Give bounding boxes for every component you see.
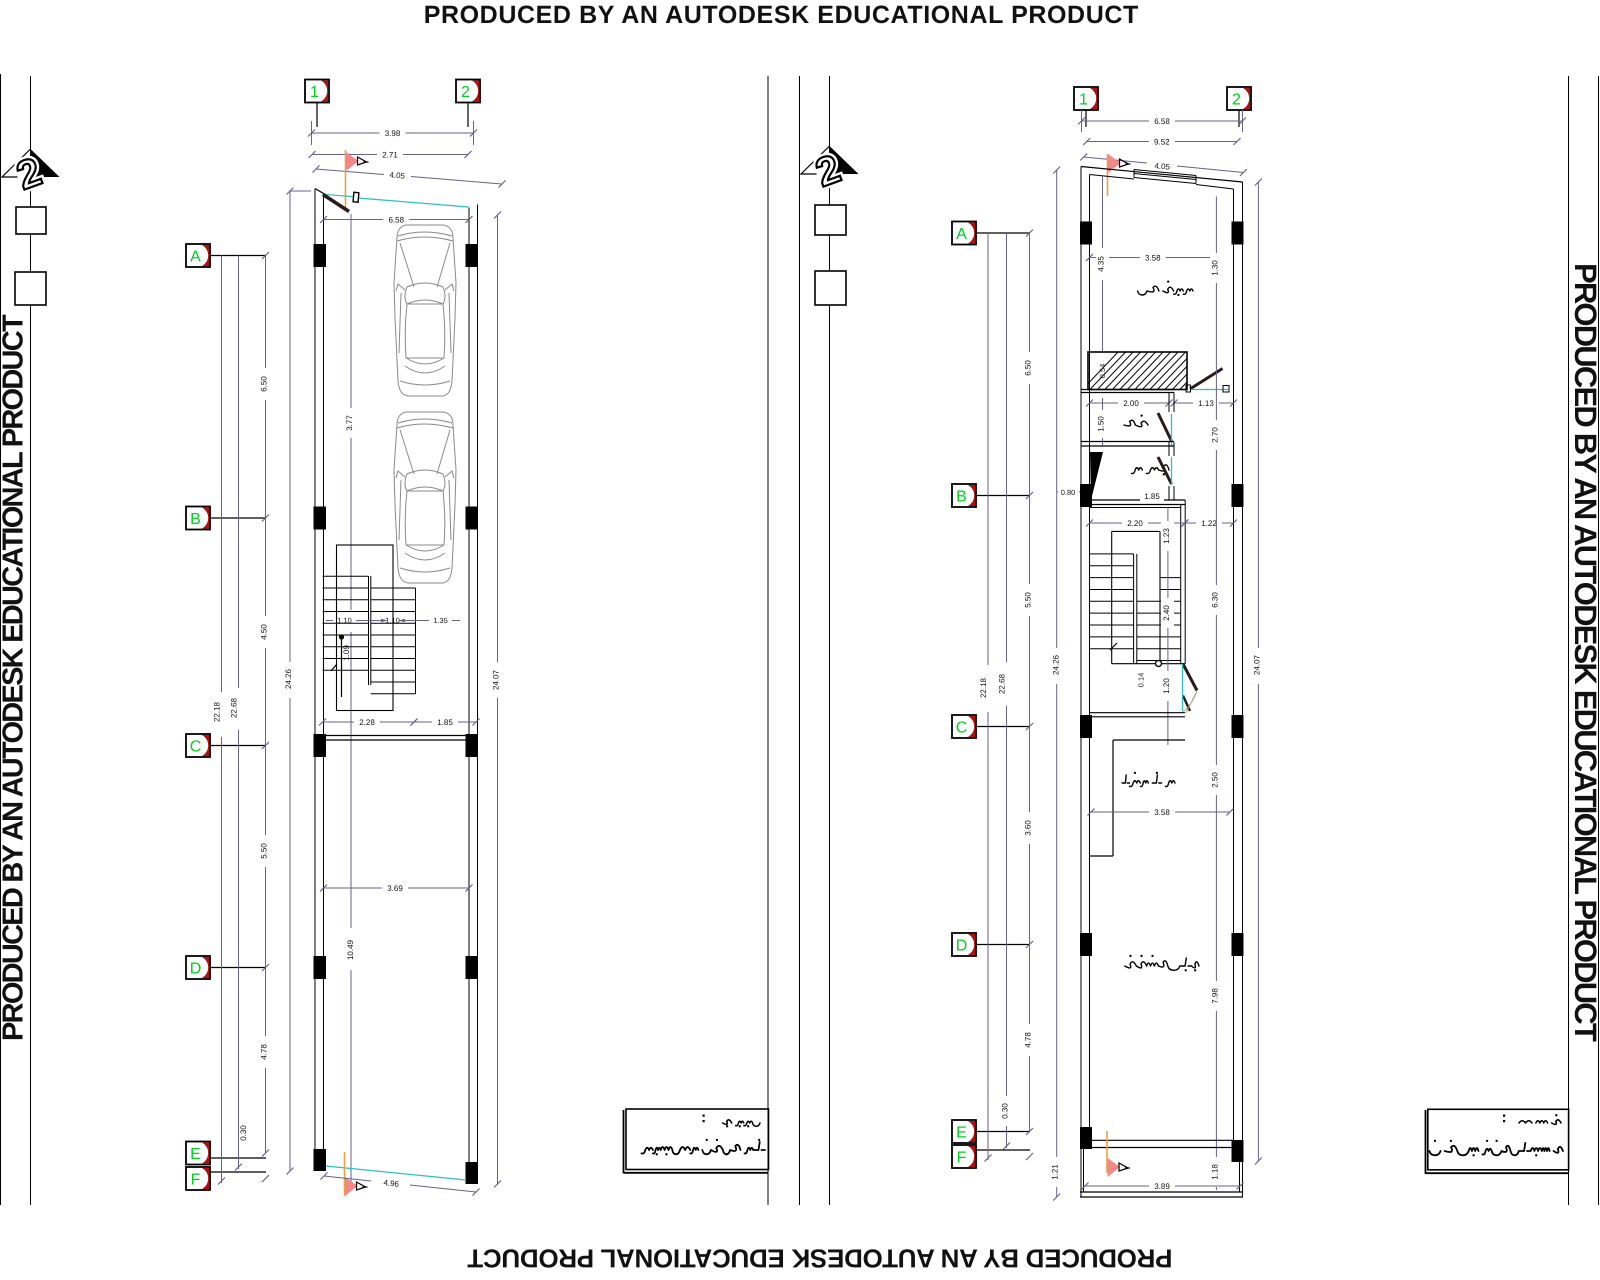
svg-text:1.10: 1.10 xyxy=(385,616,400,625)
svg-text:4.35: 4.35 xyxy=(1097,256,1106,272)
svg-text:C: C xyxy=(190,739,202,756)
svg-text:24.26: 24.26 xyxy=(284,668,293,689)
svg-text:9.52: 9.52 xyxy=(1154,138,1170,147)
svg-text:D: D xyxy=(956,938,968,955)
svg-text:3.89: 3.89 xyxy=(1154,1182,1170,1191)
svg-text:C: C xyxy=(956,720,968,737)
svg-text:1.85: 1.85 xyxy=(437,718,453,727)
svg-text:10.49: 10.49 xyxy=(346,939,355,960)
svg-text:4.78: 4.78 xyxy=(1024,1032,1033,1048)
svg-text:6.50: 6.50 xyxy=(260,376,269,392)
svg-text:1.13: 1.13 xyxy=(1198,399,1214,408)
svg-text:1.30: 1.30 xyxy=(1210,260,1219,276)
svg-text:2.71: 2.71 xyxy=(382,151,398,160)
svg-text:2.00: 2.00 xyxy=(1123,399,1139,408)
svg-text:6.58: 6.58 xyxy=(1154,117,1170,126)
svg-text:PRODUCED BY AN AUTODESK EDUCAT: PRODUCED BY AN AUTODESK EDUCATIONAL PROD… xyxy=(0,314,30,1041)
svg-text:B: B xyxy=(190,511,201,528)
svg-text:5.50: 5.50 xyxy=(1024,592,1033,608)
svg-text:0.30: 0.30 xyxy=(1001,1103,1010,1119)
svg-text:3.77: 3.77 xyxy=(345,415,354,431)
svg-text:4.05: 4.05 xyxy=(389,170,406,180)
svg-text:F: F xyxy=(191,1172,201,1189)
svg-text:0.30: 0.30 xyxy=(239,1125,248,1141)
svg-text:1.85: 1.85 xyxy=(1144,492,1160,501)
svg-text:A: A xyxy=(190,249,201,266)
svg-text:1.50: 1.50 xyxy=(1097,416,1106,432)
svg-text:0.14: 0.14 xyxy=(1137,673,1146,688)
svg-text:PRODUCED BY AN AUTODESK EDUCAT: PRODUCED BY AN AUTODESK EDUCATIONAL PROD… xyxy=(1568,263,1600,1042)
svg-text:D: D xyxy=(190,961,202,978)
svg-text:1.18: 1.18 xyxy=(1210,1164,1219,1180)
svg-text:B: B xyxy=(956,489,967,506)
svg-text:24.07: 24.07 xyxy=(492,669,501,690)
svg-text:F: F xyxy=(957,1150,967,1167)
svg-text:22.18: 22.18 xyxy=(213,701,222,722)
svg-text:E: E xyxy=(190,1146,201,1163)
svg-text:1: 1 xyxy=(1079,92,1088,109)
svg-text:PRODUCED BY AN AUTODESK EDUCAT: PRODUCED BY AN AUTODESK EDUCATIONAL PROD… xyxy=(424,1,1139,29)
svg-text:3.69: 3.69 xyxy=(387,884,403,893)
svg-text:1.10: 1.10 xyxy=(337,616,352,625)
svg-text:2.28: 2.28 xyxy=(359,718,375,727)
svg-text:E: E xyxy=(956,1125,967,1142)
svg-text:3.98: 3.98 xyxy=(385,129,401,138)
svg-text:2.20: 2.20 xyxy=(1127,519,1143,528)
svg-text:2.50: 2.50 xyxy=(1210,772,1219,788)
svg-text:1.09: 1.09 xyxy=(342,645,351,661)
svg-text:1.35: 1.35 xyxy=(433,616,448,625)
svg-text:2: 2 xyxy=(461,84,470,101)
svg-text:1.20: 1.20 xyxy=(1162,678,1171,694)
svg-text:3.58: 3.58 xyxy=(1145,254,1161,263)
svg-text:22.68: 22.68 xyxy=(230,697,239,718)
svg-text:2.40: 2.40 xyxy=(1162,605,1171,621)
svg-text:6.50: 6.50 xyxy=(1024,360,1033,376)
svg-text:1: 1 xyxy=(310,84,319,101)
svg-text:6.58: 6.58 xyxy=(388,216,404,225)
svg-text:2: 2 xyxy=(1232,92,1241,109)
svg-text:4.05: 4.05 xyxy=(1154,161,1171,171)
svg-text:1.21: 1.21 xyxy=(1051,1164,1060,1180)
svg-text:3.60: 3.60 xyxy=(1024,820,1033,836)
svg-text:22.18: 22.18 xyxy=(979,677,988,698)
svg-text:1.23: 1.23 xyxy=(1162,528,1171,544)
svg-text:4.96: 4.96 xyxy=(383,1178,400,1189)
svg-text:22.68: 22.68 xyxy=(998,673,1007,694)
svg-text:2.70: 2.70 xyxy=(1210,427,1219,443)
svg-text:1.22: 1.22 xyxy=(1201,519,1217,528)
svg-text:3.58: 3.58 xyxy=(1154,808,1170,817)
svg-text:PRODUCED BY AN AUTODESK EDUCAT: PRODUCED BY AN AUTODESK EDUCATIONAL PROD… xyxy=(467,1244,1172,1274)
svg-text:24.26: 24.26 xyxy=(1052,654,1061,675)
svg-text:5.50: 5.50 xyxy=(260,843,269,859)
svg-text:6.30: 6.30 xyxy=(1210,592,1219,608)
svg-text:7.98: 7.98 xyxy=(1210,988,1219,1004)
svg-text:4.50: 4.50 xyxy=(260,624,269,640)
svg-text:4.78: 4.78 xyxy=(260,1044,269,1060)
svg-text:A: A xyxy=(956,226,967,243)
svg-text:24.07: 24.07 xyxy=(1252,654,1261,675)
svg-text:0.54: 0.54 xyxy=(1098,364,1107,379)
svg-text:0.80: 0.80 xyxy=(1061,488,1076,497)
